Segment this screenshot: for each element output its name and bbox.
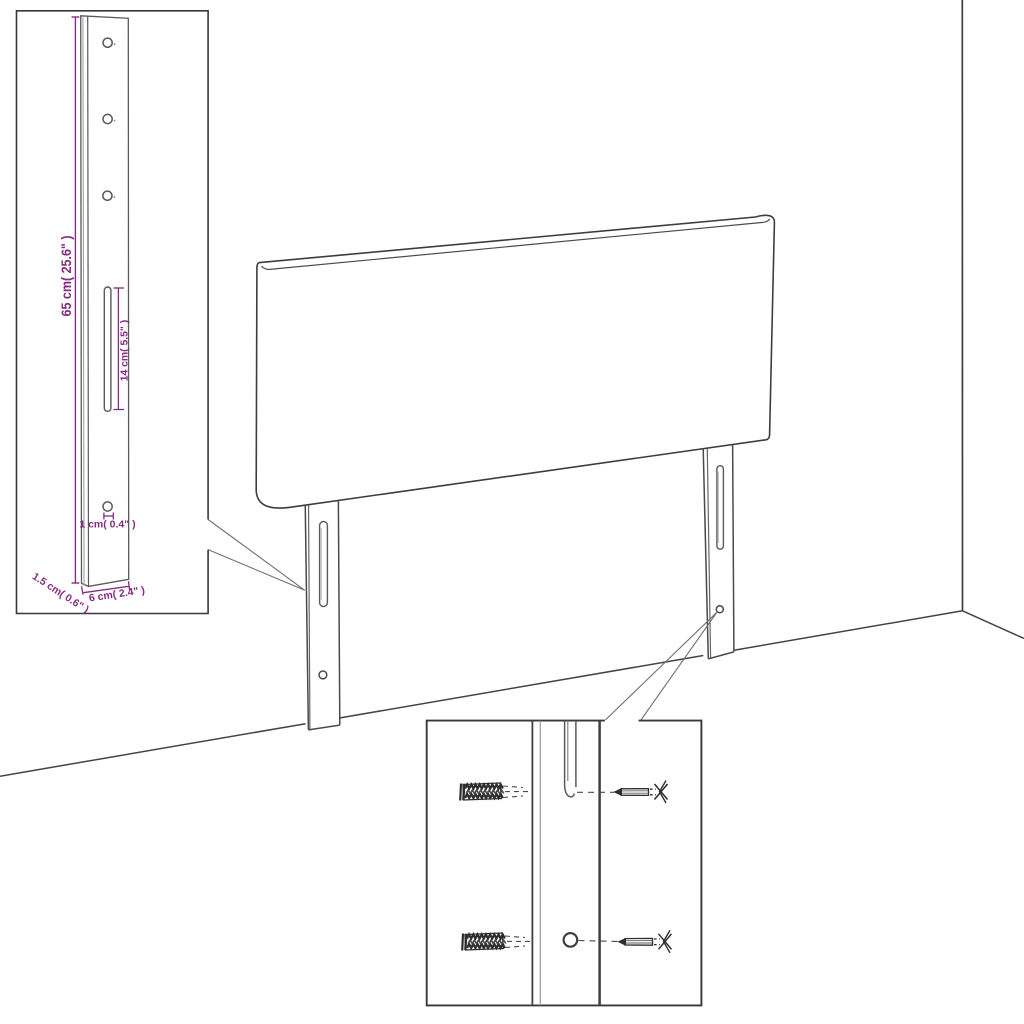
svg-text:1 cm( 0.4" ): 1 cm( 0.4" ) bbox=[79, 519, 135, 531]
svg-text:14 cm( 5.5" ): 14 cm( 5.5" ) bbox=[118, 320, 130, 382]
svg-text:65 cm( 25.6" ): 65 cm( 25.6" ) bbox=[58, 236, 74, 317]
